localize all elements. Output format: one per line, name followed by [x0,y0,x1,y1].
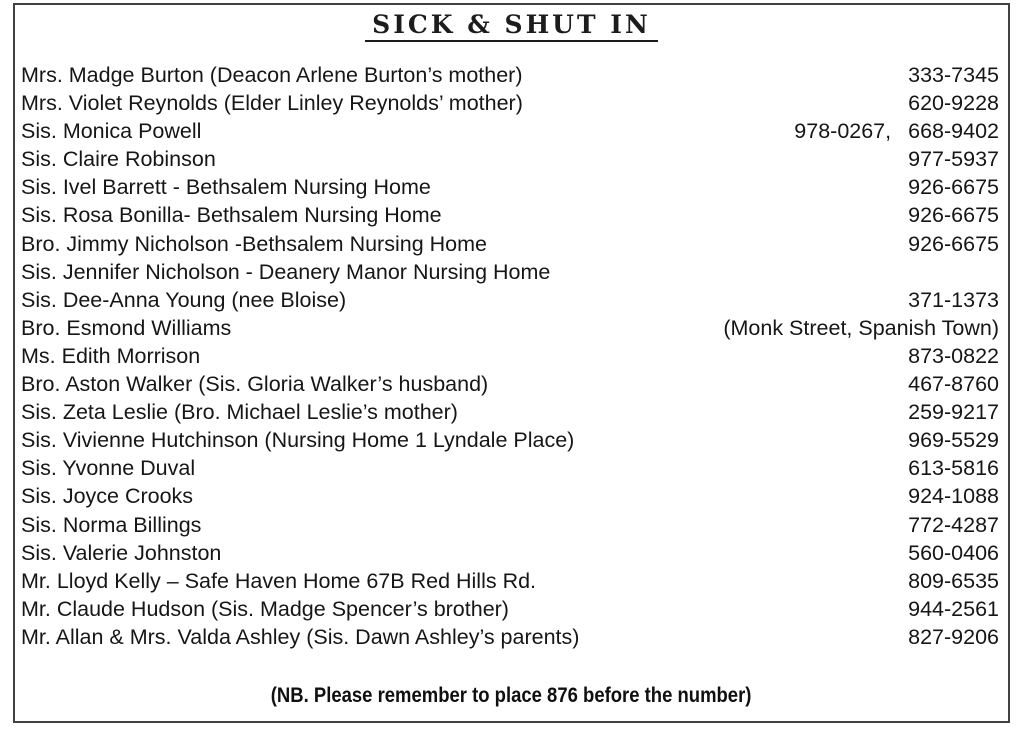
entry-name: Mrs. Violet Reynolds (Elder Linley Reyno… [21,89,523,117]
entry-name: Sis. Valerie Johnston [21,539,221,567]
entry-phone: 371-1373 [908,288,999,312]
entry-phone-group: (Monk Street, Spanish Town) [723,314,999,342]
entry-phone-group: 926-6675 [908,230,999,258]
bulletin-page: SICK & SHUT IN Mrs. Madge Burton (Deacon… [13,3,1010,723]
list-item: Sis. Dee-Anna Young (nee Bloise) 371-137… [15,286,1008,314]
entry-name: Ms. Edith Morrison [21,342,200,370]
entry-phone: 467-8760 [908,372,999,396]
entry-name: Sis. Zeta Leslie (Bro. Michael Leslie’s … [21,398,458,426]
list-item: Bro. Jimmy Nicholson -Bethsalem Nursing … [15,230,1008,258]
entry-phone: (Monk Street, Spanish Town) [723,316,999,340]
entry-phone-group: 944-2561 [908,595,999,623]
entry-phone: 772-4287 [908,513,999,537]
entry-phone-group: 613-5816 [908,454,999,482]
list-item: Sis. Valerie Johnston 560-0406 [15,539,1008,567]
entry-name: Sis. Ivel Barrett - Bethsalem Nursing Ho… [21,173,431,201]
entry-phone-group: 333-7345 [908,61,999,89]
list-item: Sis. Ivel Barrett - Bethsalem Nursing Ho… [15,173,1008,201]
entry-phone-group: 924-1088 [908,482,999,510]
entry-phone-group: 977-5937 [908,145,999,173]
entry-phone-prefix: 978-0267, [794,119,891,143]
entry-name: Sis. Claire Robinson [21,145,216,173]
entry-phone: 333-7345 [908,63,999,87]
entry-name: Mr. Allan & Mrs. Valda Ashley (Sis. Dawn… [21,623,579,651]
entry-phone: 926-6675 [908,232,999,256]
list-item: Mr. Lloyd Kelly – Safe Haven Home 67B Re… [15,567,1008,595]
entry-phone: 944-2561 [908,597,999,621]
footer-note: (NB. Please remember to place 876 before… [15,684,1008,708]
entry-phone: 827-9206 [908,625,999,649]
list-item: Mr. Claude Hudson (Sis. Madge Spencer’s … [15,595,1008,623]
list-item: Sis. Jennifer Nicholson - Deanery Manor … [15,258,1008,286]
entry-phone: 613-5816 [908,456,999,480]
list-item: Sis. Vivienne Hutchinson (Nursing Home 1… [15,426,1008,454]
entry-name: Sis. Norma Billings [21,511,201,539]
entry-phone: 873-0822 [908,344,999,368]
list-item: Sis. Monica Powell 978-0267,668-9402 [15,117,1008,145]
title-row: SICK & SHUT IN [15,11,1008,48]
entry-phone: 977-5937 [908,147,999,171]
entry-name: Sis. Vivienne Hutchinson (Nursing Home 1… [21,426,574,454]
list-item: Sis. Norma Billings 772-4287 [15,511,1008,539]
entry-phone: 924-1088 [908,484,999,508]
entry-phone-group: 259-9217 [908,398,999,426]
entry-phone-group: 926-6675 [908,173,999,201]
entry-phone: 668-9402 [908,119,999,143]
list-item: Mrs. Madge Burton (Deacon Arlene Burton’… [15,61,1008,89]
list-item: Sis. Zeta Leslie (Bro. Michael Leslie’s … [15,398,1008,426]
list-item: Bro. Aston Walker (Sis. Gloria Walker’s … [15,370,1008,398]
page-title: SICK & SHUT IN [365,11,658,42]
entry-phone: 926-6675 [908,203,999,227]
entry-phone: 560-0406 [908,541,999,565]
entry-name: Sis. Joyce Crooks [21,482,193,510]
list-item: Bro. Esmond Williams (Monk Street, Spani… [15,314,1008,342]
entry-phone-group: 809-6535 [908,567,999,595]
entry-phone: 926-6675 [908,175,999,199]
entry-phone: 969-5529 [908,428,999,452]
entry-phone: 259-9217 [908,400,999,424]
list-item: Mrs. Violet Reynolds (Elder Linley Reyno… [15,89,1008,117]
entry-name: Mr. Lloyd Kelly – Safe Haven Home 67B Re… [21,567,536,595]
entry-name: Sis. Dee-Anna Young (nee Bloise) [21,286,346,314]
entry-phone: 809-6535 [908,569,999,593]
entry-name: Mrs. Madge Burton (Deacon Arlene Burton’… [21,61,523,89]
entry-phone-group: 827-9206 [908,623,999,651]
entry-name: Mr. Claude Hudson (Sis. Madge Spencer’s … [21,595,509,623]
entry-name: Bro. Aston Walker (Sis. Gloria Walker’s … [21,370,488,398]
footer-note-text: (NB. Please remember to place 876 before… [271,684,752,708]
entry-phone-group: 873-0822 [908,342,999,370]
entry-name: Bro. Esmond Williams [21,314,231,342]
entry-phone-group: 371-1373 [908,286,999,314]
entry-phone-group: 926-6675 [908,201,999,229]
entry-phone-group: 560-0406 [908,539,999,567]
entry-name: Sis. Monica Powell [21,117,201,145]
list-item: Sis. Claire Robinson 977-5937 [15,145,1008,173]
sick-list: Mrs. Madge Burton (Deacon Arlene Burton’… [15,61,1008,651]
entry-phone: 620-9228 [908,91,999,115]
list-item: Sis. Joyce Crooks 924-1088 [15,482,1008,510]
entry-name: Sis. Yvonne Duval [21,454,195,482]
entry-phone-group: 978-0267,668-9402 [794,117,999,145]
entry-phone-group: 467-8760 [908,370,999,398]
list-item: Sis. Rosa Bonilla- Bethsalem Nursing Hom… [15,201,1008,229]
entry-name: Sis. Jennifer Nicholson - Deanery Manor … [21,258,550,286]
list-item: Ms. Edith Morrison 873-0822 [15,342,1008,370]
entry-phone-group: 620-9228 [908,89,999,117]
list-item: Mr. Allan & Mrs. Valda Ashley (Sis. Dawn… [15,623,1008,651]
entry-name: Sis. Rosa Bonilla- Bethsalem Nursing Hom… [21,201,442,229]
entry-phone-group: 969-5529 [908,426,999,454]
entry-phone-group: 772-4287 [908,511,999,539]
entry-name: Bro. Jimmy Nicholson -Bethsalem Nursing … [21,230,487,258]
list-item: Sis. Yvonne Duval 613-5816 [15,454,1008,482]
